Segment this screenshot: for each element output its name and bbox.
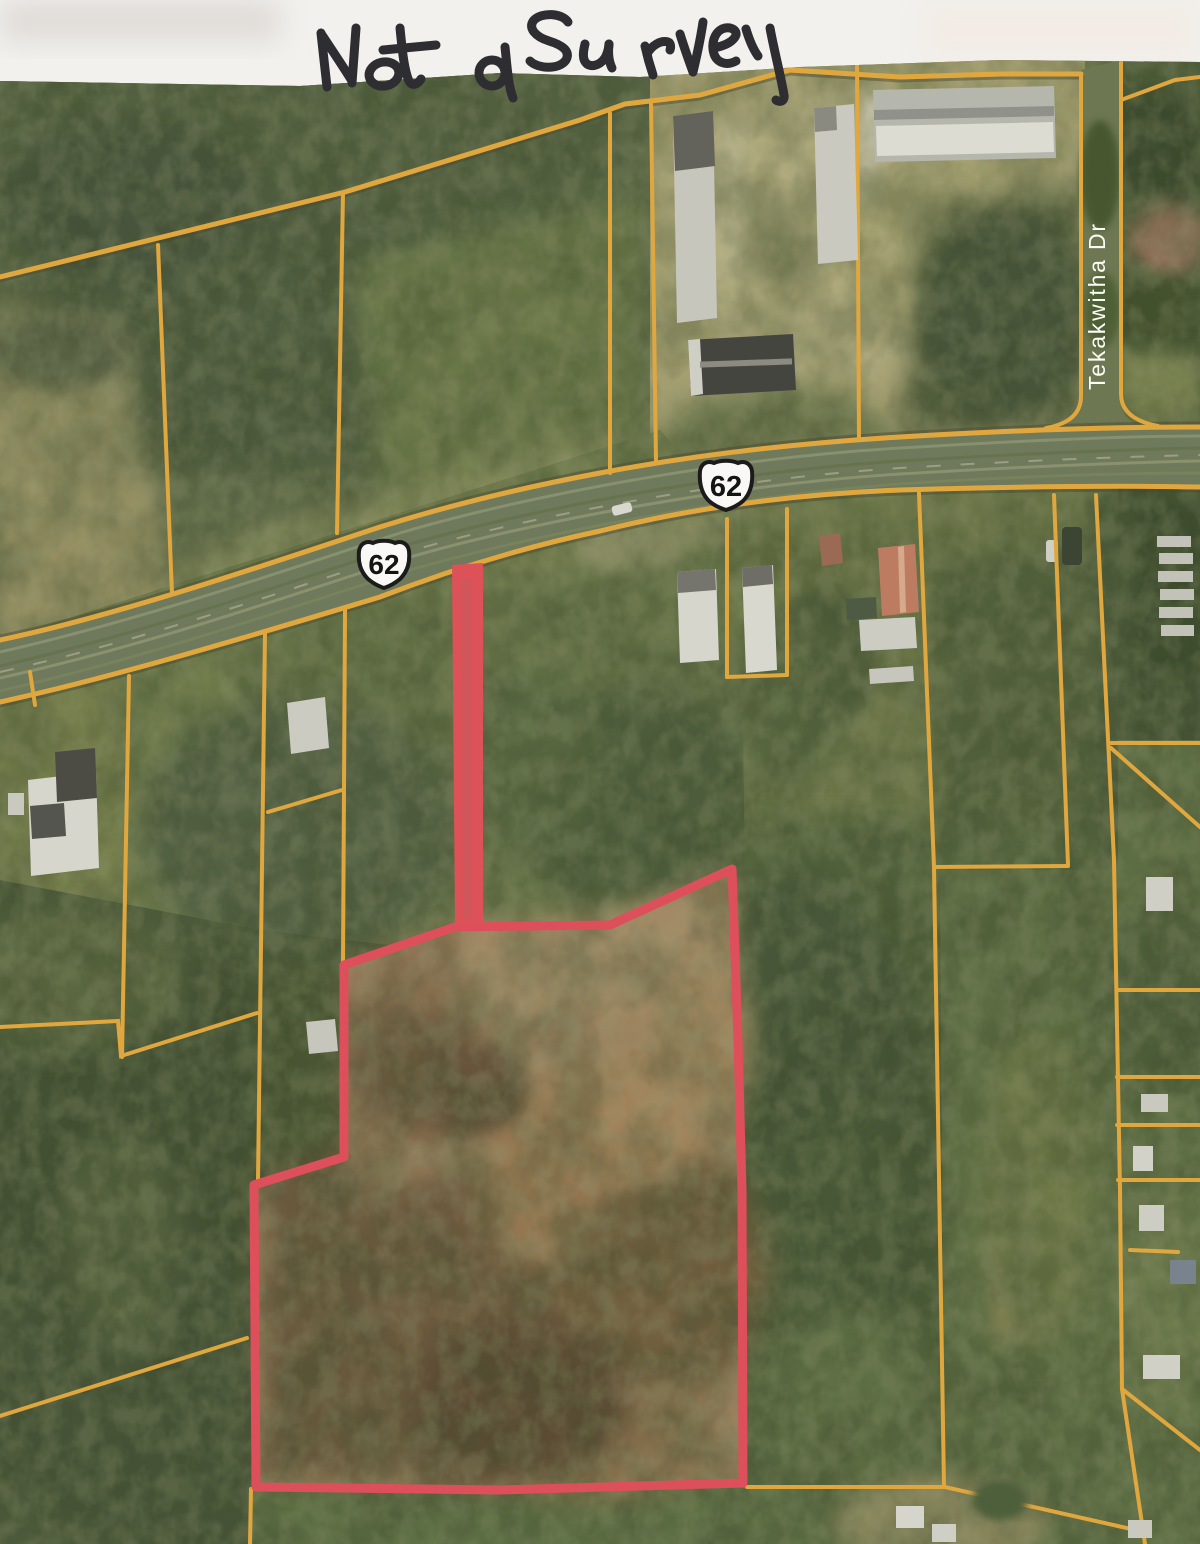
svg-text:Tekakwitha Dr: Tekakwitha Dr <box>1084 222 1110 390</box>
svg-text:62: 62 <box>368 549 399 580</box>
svg-text:62: 62 <box>710 471 742 503</box>
